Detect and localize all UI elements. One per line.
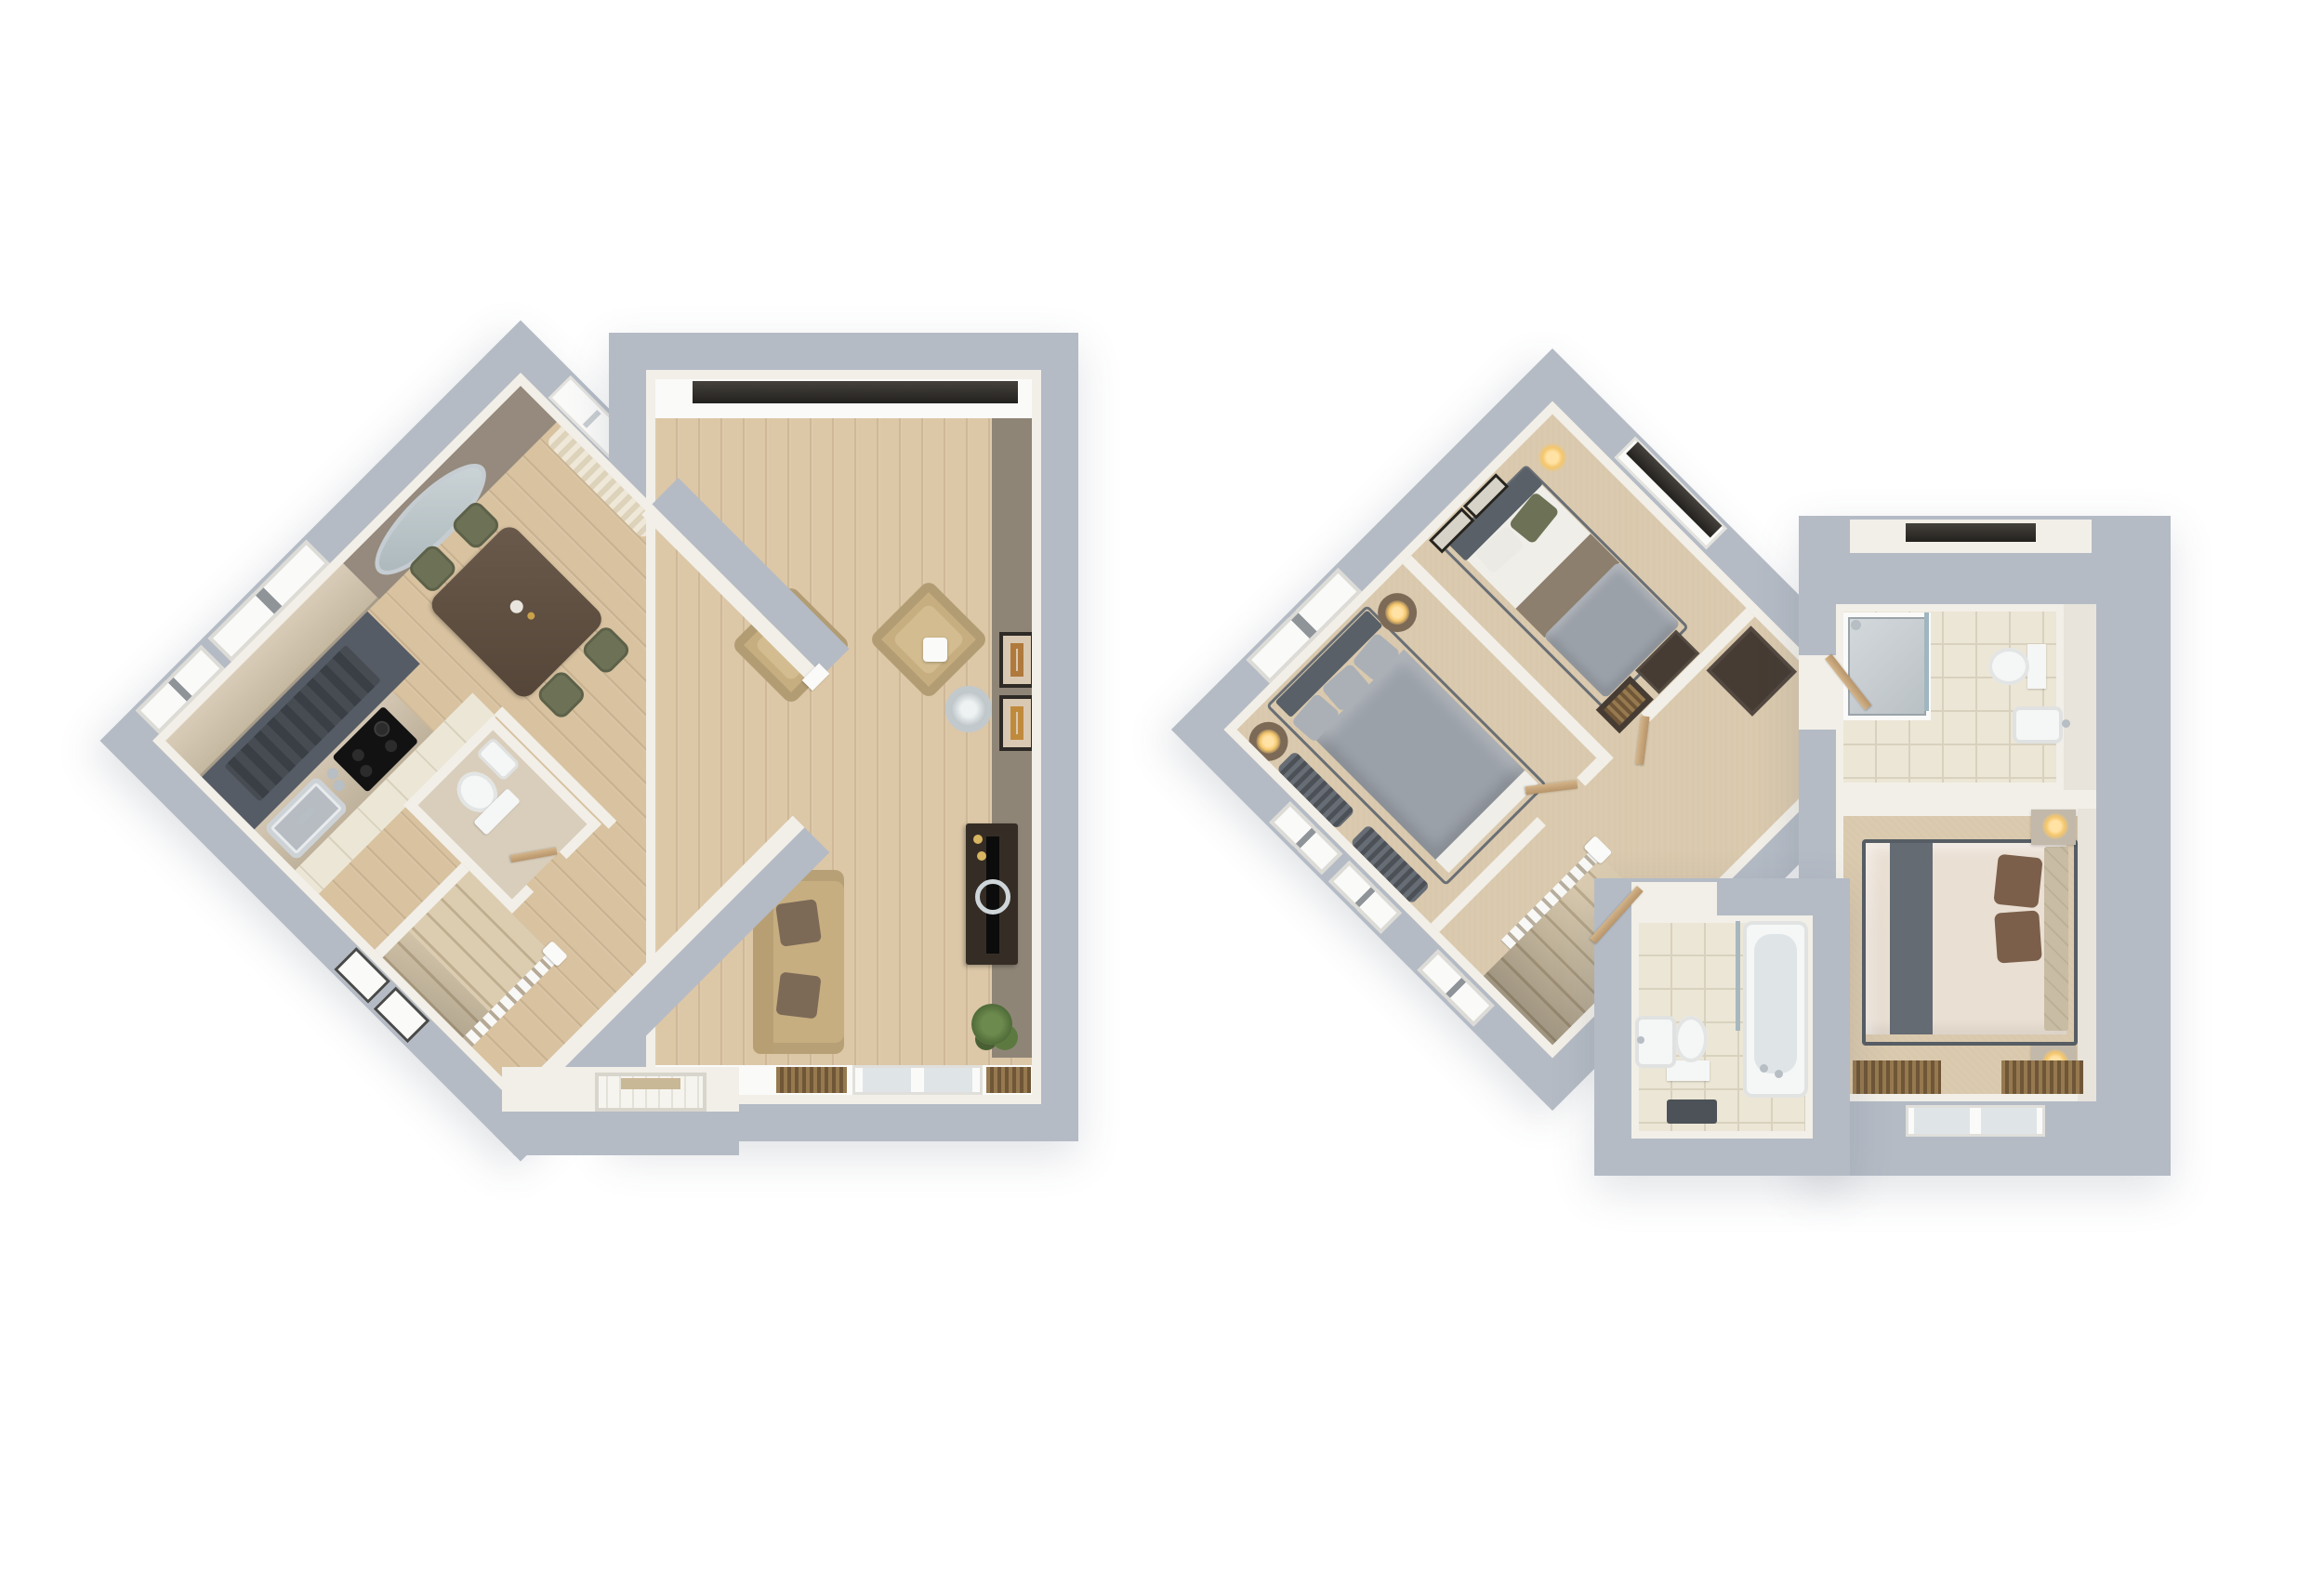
sofa-cushion xyxy=(775,899,822,947)
bedroom3-door xyxy=(1635,716,1649,765)
bedroom3-lamp xyxy=(1533,438,1572,477)
tv-unit-knobs xyxy=(973,835,983,844)
bedroom1-wall-se-a xyxy=(1577,757,1604,785)
master-window xyxy=(1906,1105,2045,1137)
master-pillow xyxy=(1993,854,2042,909)
bath-inner xyxy=(1754,934,1797,1073)
ensuite-tap xyxy=(2062,719,2070,728)
master-pillow xyxy=(1994,910,2042,963)
first-floor-plan xyxy=(1162,0,2324,1580)
dining-curtains xyxy=(546,427,659,540)
master-blind xyxy=(1853,1060,1941,1094)
ensuite-master-wall xyxy=(1836,790,2096,809)
ensuite-basin xyxy=(2013,706,2063,744)
floor-lamp-base xyxy=(923,638,947,662)
bath-mat xyxy=(1667,1099,1717,1124)
bathroom-tap xyxy=(1637,1036,1644,1044)
floor-lamp-shade xyxy=(945,686,992,732)
living-window-blind-box xyxy=(693,381,1018,403)
bathroom-block xyxy=(1594,878,1850,1176)
ensuite-master-block xyxy=(1799,516,2171,1176)
radiator-blind xyxy=(776,1067,847,1093)
front-porch xyxy=(502,1067,739,1155)
tv-stand-ring xyxy=(975,879,1010,915)
bath-taps xyxy=(1760,1064,1768,1073)
front-door-mat xyxy=(621,1078,680,1089)
master-lamp xyxy=(2042,813,2068,839)
shower-head xyxy=(1851,620,1861,630)
armchair-cushion xyxy=(754,608,827,681)
radiator-blind xyxy=(986,1067,1031,1093)
ensuite-toilet-cistern xyxy=(2027,644,2046,689)
bathroom-toilet-bowl xyxy=(1674,1016,1708,1062)
master-runner xyxy=(1890,843,1933,1034)
sofa-back xyxy=(753,870,775,1054)
master-right-face xyxy=(2078,809,2096,1101)
living-room xyxy=(646,370,1041,1104)
ensuite-blind-box xyxy=(1906,523,2036,542)
ensuite-toilet-bowl xyxy=(1988,648,2029,685)
shower-glass xyxy=(1924,612,1929,711)
ensuite-right-face xyxy=(2064,604,2096,790)
sofa xyxy=(773,870,844,1054)
master-blind xyxy=(2001,1060,2083,1094)
picture-frame xyxy=(999,632,1035,688)
floorplan-canvas xyxy=(0,0,2324,1580)
bathroom-door-casing xyxy=(1631,882,1717,915)
armchair xyxy=(731,585,852,705)
ground-floor-plan xyxy=(0,0,1162,1580)
picture-frame xyxy=(999,695,1035,751)
sofa-cushion xyxy=(775,971,821,1019)
plant-leaves xyxy=(971,1004,1012,1045)
bath-screen xyxy=(1736,921,1740,1031)
french-doors xyxy=(852,1065,983,1095)
master-headboard xyxy=(2044,847,2068,1031)
